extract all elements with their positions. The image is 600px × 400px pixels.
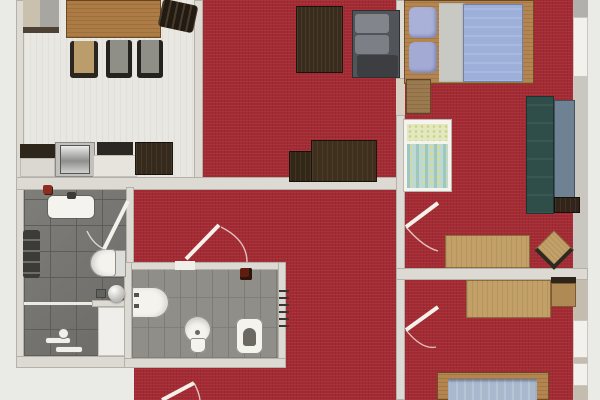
sphere-stool — [108, 285, 125, 302]
dining-chair-1 — [70, 41, 98, 78]
wc-toilet-base — [190, 338, 206, 353]
wc-radiator — [279, 290, 289, 332]
teal-sofa-seat — [554, 100, 575, 210]
desk-bedroom2 — [466, 280, 551, 318]
bathtub-basin — [132, 287, 169, 318]
shower-knob — [59, 329, 68, 338]
bidet-bowl — [243, 328, 256, 346]
kitchen-tall-cabinet — [135, 142, 173, 175]
sideboard-front — [23, 27, 59, 33]
side-table — [554, 197, 580, 213]
dining-chair-3 — [137, 40, 163, 78]
window-bedroom2-b — [573, 363, 588, 386]
baby-crib — [403, 119, 452, 192]
kitchen-counter-left — [20, 158, 55, 177]
sideboard — [23, 0, 59, 33]
kitchen-cooktop — [97, 142, 133, 155]
dark-wood-table — [296, 6, 343, 73]
sofa-cushion-2 — [355, 35, 389, 54]
kitchen-cabinet-dark — [20, 144, 55, 158]
chair-bedroom2 — [551, 277, 576, 307]
shower-bar-1 — [46, 338, 70, 343]
wall-outer-bottom-left — [16, 356, 134, 368]
tv-cabinet-side — [289, 151, 312, 182]
wall-right-outer-bottom — [573, 386, 588, 400]
crib-blanket — [407, 144, 448, 188]
kitchen-sink-unit — [55, 142, 95, 177]
sideboard-left — [23, 0, 40, 28]
crib-pillow — [407, 124, 448, 141]
single-bed-frame — [437, 372, 549, 400]
wall-wc-top — [124, 262, 286, 270]
wall-bathroom-right — [126, 187, 134, 270]
small-red-item-kitchen — [43, 185, 52, 194]
wall-hung-toilet — [90, 249, 116, 277]
bed-blanket — [439, 3, 465, 82]
towel-radiator — [23, 230, 40, 278]
bathtub-tap-1 — [134, 293, 139, 297]
bidet — [236, 318, 263, 354]
washbasin-faucet — [67, 192, 76, 199]
wall-right-outer-mid — [573, 77, 588, 268]
wall-wc-bottom — [124, 358, 286, 368]
gray-sofa — [352, 10, 400, 78]
bed-pillow-1 — [409, 7, 437, 38]
wc-decor-item — [240, 268, 252, 280]
floor-plan — [0, 0, 600, 400]
desk-bedroom1 — [445, 235, 530, 268]
bed-mattress — [463, 4, 523, 82]
door-threshold-living-bedroom1 — [396, 79, 405, 115]
bathtub-tap-2 — [134, 304, 139, 308]
open-door-leaf-wood — [406, 79, 431, 114]
sink-basin — [60, 145, 90, 174]
teal-sofa-back — [526, 96, 554, 214]
window-bedroom2-a — [573, 320, 588, 358]
washbasin — [48, 196, 94, 218]
shower-partition — [24, 302, 92, 305]
storage-box — [96, 289, 106, 298]
tv-cabinet-main — [311, 140, 377, 182]
double-bed-frame — [404, 0, 534, 84]
floor-storage-niche — [98, 307, 126, 356]
bed-pillow-2 — [409, 42, 437, 73]
sofa-chaise — [357, 55, 398, 77]
window-bedroom1 — [573, 17, 588, 77]
wall-wc-left — [124, 262, 132, 368]
sideboard-right — [40, 0, 59, 28]
dining-table — [66, 0, 161, 38]
dining-chair-2 — [106, 40, 132, 78]
shower-bar-2 — [56, 347, 82, 352]
wall-right-outer-top — [573, 0, 588, 17]
single-bed-mattress — [448, 379, 537, 400]
kitchen-counter-white — [93, 155, 137, 177]
tv-cabinet — [289, 140, 377, 182]
wc-toilet-drain — [195, 330, 200, 335]
wall-kitchen-living — [194, 0, 203, 182]
sofa-cushion-1 — [355, 14, 389, 33]
